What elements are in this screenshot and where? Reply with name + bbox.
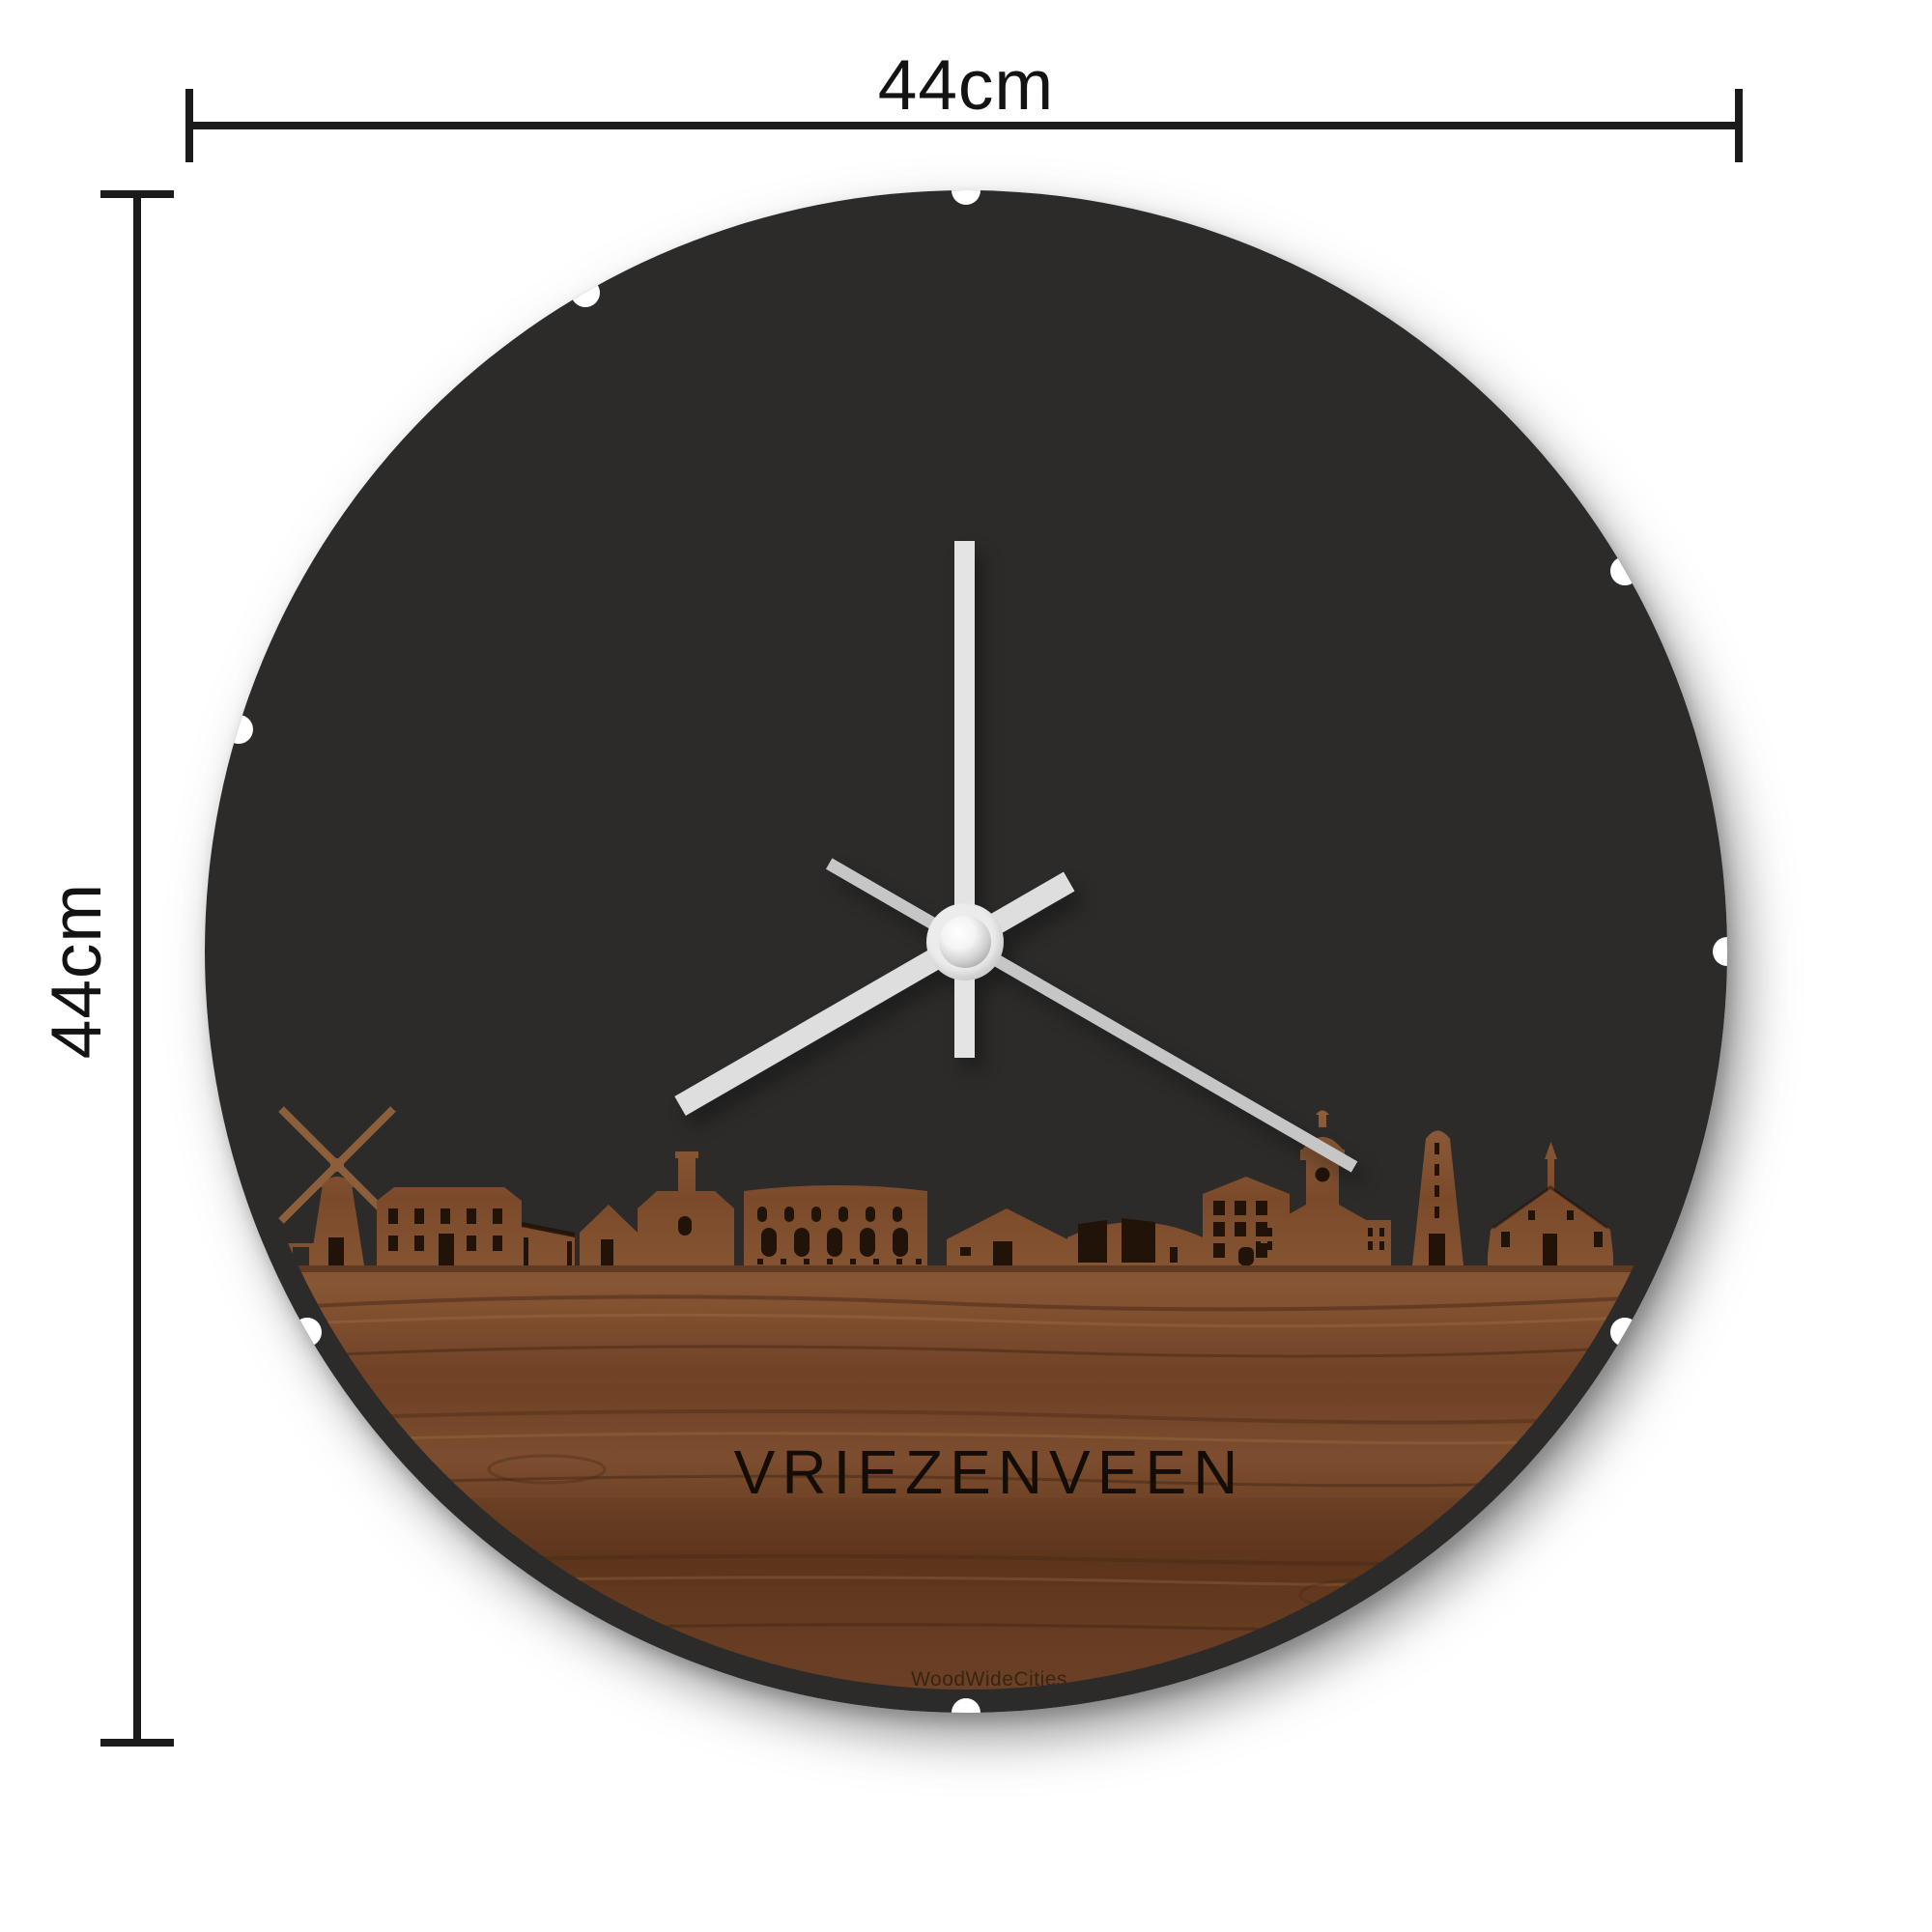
brand-label: WoodWideCities — [228, 1668, 1704, 1690]
city-name-label: VRIEZENVEEN — [228, 1436, 1704, 1508]
hanging-notch-lower-right — [1610, 1318, 1639, 1347]
height-dimension-tick-top — [100, 190, 174, 198]
hanging-notch-right — [1713, 937, 1727, 966]
hanging-notch-bottom — [952, 1698, 980, 1713]
width-dimension-label: 44cm — [0, 50, 1932, 121]
hanging-notch-upper-left — [571, 278, 600, 307]
hanging-notch-top — [952, 190, 980, 205]
height-dimension-line — [133, 194, 141, 1746]
height-dimension-tick-bottom — [100, 1739, 174, 1747]
height-dimension-label: 44cm — [39, 826, 116, 1116]
clock-hub-cap — [939, 916, 991, 968]
hanging-notch-left — [224, 715, 253, 744]
hanging-notch-upper-right — [1610, 556, 1639, 585]
hanging-notch-lower-left — [293, 1318, 322, 1347]
clock-face: VRIEZENVEEN WoodWideCities — [205, 190, 1727, 1713]
product-dimension-diagram: 44cm 44cm — [0, 0, 1932, 1932]
